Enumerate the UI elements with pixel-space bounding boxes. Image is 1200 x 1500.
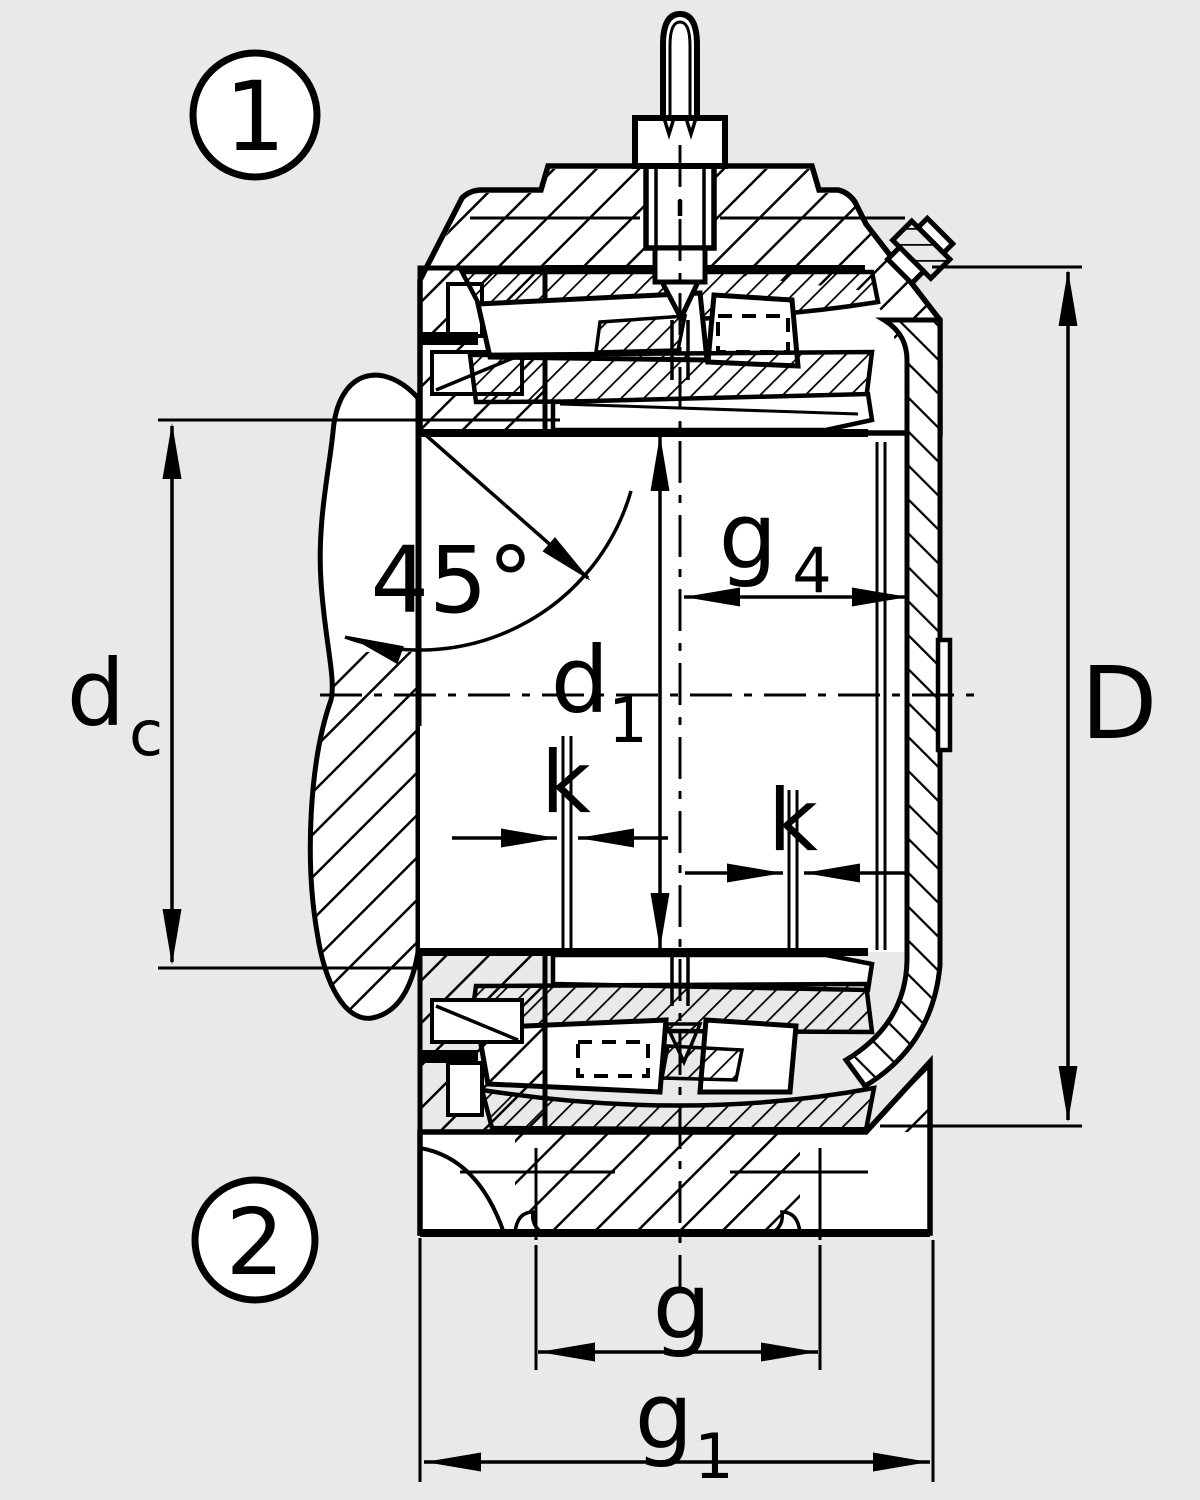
label-g4: g	[719, 483, 777, 590]
drawing-page: d c 45° d 1 g 4 k	[0, 0, 1200, 1500]
label-45deg: 45°	[370, 527, 533, 634]
nipple-stem	[663, 14, 697, 118]
label-d1-sub: 1	[608, 684, 647, 757]
seal-carrier-bottom	[420, 952, 545, 1132]
label-dc-sub: c	[129, 697, 163, 770]
pedestal-hatch	[515, 1132, 800, 1233]
label-k-right: k	[768, 771, 818, 871]
label-D: D	[1080, 645, 1157, 762]
label-g: g	[653, 1253, 711, 1360]
label-g4-sub: 4	[792, 534, 831, 607]
label-g1-sub: 1	[694, 1420, 733, 1493]
callout-2: 2	[195, 1180, 315, 1300]
label-k-left: k	[541, 733, 591, 833]
label-g1: g	[635, 1363, 693, 1470]
seal-strip	[420, 332, 478, 345]
label-d1: d	[551, 627, 609, 734]
callout-1-number: 1	[224, 61, 285, 173]
seal-groove	[448, 1063, 482, 1115]
callout-1: 1	[193, 53, 317, 177]
bearing-housing-section-figure: d c 45° d 1 g 4 k	[0, 0, 1200, 1500]
callout-2-number: 2	[226, 1189, 285, 1296]
cage-section-bottom	[662, 1046, 742, 1080]
label-dc: d	[67, 640, 125, 747]
